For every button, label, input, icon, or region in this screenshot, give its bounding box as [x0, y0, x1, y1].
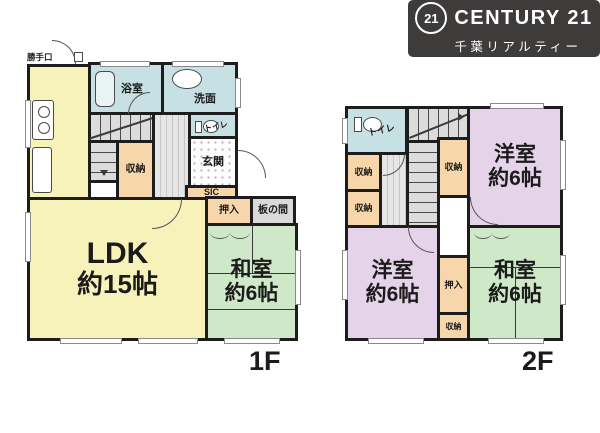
oshiire-1f-label: 押入 — [219, 205, 239, 217]
room-ldk: LDK 約15帖 — [27, 197, 208, 341]
washitsu-1f-name: 和室 — [231, 258, 273, 282]
washitsu-1f-size: 約6帖 — [225, 282, 279, 306]
toilet-icon — [354, 117, 362, 132]
room-closet-2f-c: 収納 — [437, 137, 470, 198]
logo-brand-text: CENTURY 21 — [454, 7, 592, 30]
closet-1f-label: 収納 — [126, 164, 146, 176]
window — [25, 100, 31, 148]
yoshitsu-a-name: 洋室 — [494, 143, 536, 167]
washitsu-2f-size: 約6帖 — [488, 283, 542, 307]
stairs-diagonal — [89, 117, 154, 139]
washitsu-2f-name: 和室 — [494, 259, 536, 283]
yoshitsu-a-size: 約6帖 — [488, 167, 542, 191]
toilet-icon — [195, 121, 202, 133]
room-washroom: 洗面 — [161, 62, 238, 115]
window — [25, 212, 31, 262]
room-toilet-1f: トイレ — [188, 112, 238, 139]
door-arc-washitsu-2f — [474, 227, 492, 239]
window — [342, 118, 348, 144]
window — [60, 338, 122, 344]
bathtub-icon — [95, 71, 115, 107]
room-itanoma: 板の間 — [250, 196, 296, 226]
room-closet-1f: 収納 — [116, 140, 155, 200]
window — [235, 78, 241, 108]
room-closet-2f-b: 収納 — [345, 189, 382, 228]
door-arc-entrance — [238, 150, 266, 178]
room-toilet-2f: トイレ — [345, 106, 408, 155]
yoshitsu-b-name: 洋室 — [372, 259, 414, 283]
century21-logo: 21 CENTURY 21 千葉リアルティー — [408, 0, 600, 57]
stairs-1f-upper — [88, 112, 155, 143]
floor2-label: 2F — [522, 346, 554, 377]
closet-2f-c-label: 収納 — [444, 162, 462, 172]
kitchen-sink-icon — [32, 147, 52, 193]
room-closet-2f-a: 収納 — [345, 152, 382, 192]
door-arc-washitsu-2f — [492, 227, 510, 239]
room-washitsu-2f: 和室 約6帖 — [467, 225, 563, 341]
room-washitsu-1f: 和室 約6帖 — [205, 223, 298, 341]
stove-icon — [32, 100, 54, 140]
window — [224, 338, 280, 344]
backdoor-leaf — [74, 52, 83, 62]
logo-company-text: 千葉リアルティー — [426, 36, 581, 55]
logo-mark-text: 21 — [424, 11, 438, 26]
closet-2f-a-label: 収納 — [354, 167, 372, 177]
floorplan-image: 浴室 洗面 トイレ 収納 玄関 — [0, 0, 600, 433]
yoshitsu-b-size: 約6帖 — [366, 283, 420, 307]
window — [488, 338, 544, 344]
room-closet-2f-d: 収納 — [437, 312, 470, 341]
ldk-name: LDK — [87, 238, 149, 270]
door-arc-washitsu-1f — [210, 226, 230, 239]
window — [100, 61, 150, 67]
window — [368, 338, 424, 344]
century21-mark-icon: 21 — [415, 2, 447, 34]
door-arc-washitsu-1f — [230, 226, 250, 239]
room-bath: 浴室 — [88, 62, 164, 115]
itanoma-label: 板の間 — [258, 205, 288, 217]
window — [560, 255, 566, 305]
closet-2f-b-label: 収納 — [354, 203, 372, 213]
window — [295, 250, 301, 305]
closet-2f-d-label: 収納 — [446, 322, 462, 331]
stairs-1f-lower — [88, 140, 119, 183]
room-oshiire-2f: 押入 — [437, 255, 470, 315]
ldk-size: 約15帖 — [77, 270, 158, 300]
door-arc-backdoor — [52, 40, 76, 64]
stairs-down-arrow — [100, 170, 108, 176]
window — [138, 338, 198, 344]
stairs-up-arrow — [458, 113, 464, 121]
entrance-label: 玄関 — [202, 156, 224, 169]
window — [560, 140, 566, 190]
room-oshiire-1f: 押入 — [205, 196, 253, 226]
room-entrance: 玄関 — [188, 136, 238, 188]
room-kitchen — [27, 64, 91, 200]
window — [342, 250, 348, 300]
backdoor-label: 勝手口 — [26, 53, 54, 63]
window — [172, 61, 224, 67]
oshiire-2f-label: 押入 — [444, 280, 462, 290]
washroom-label: 洗面 — [194, 93, 216, 106]
basin-icon — [172, 69, 202, 89]
floor1-label: 1F — [249, 346, 281, 377]
tatami-line — [208, 309, 295, 310]
window — [490, 103, 544, 109]
